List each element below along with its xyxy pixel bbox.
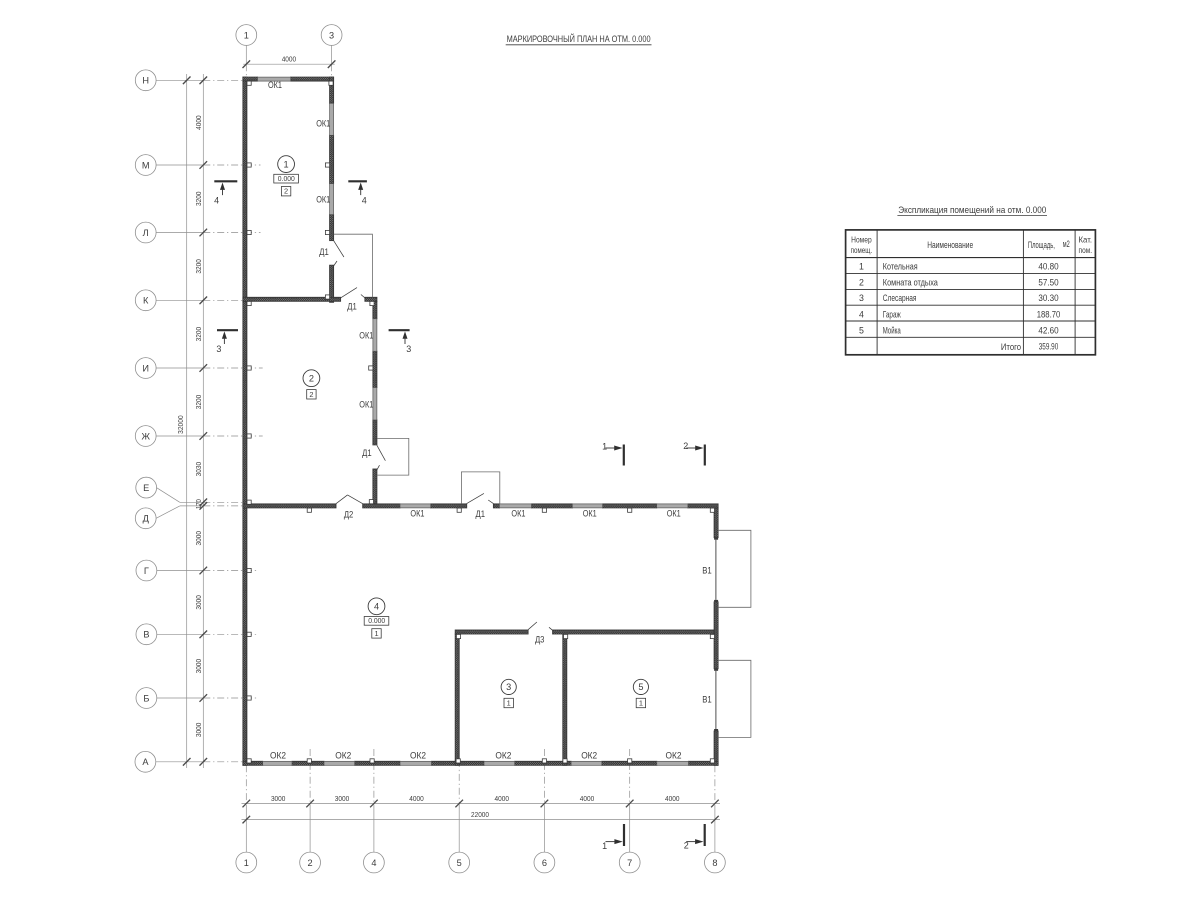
svg-text:4000: 4000 — [580, 796, 595, 803]
svg-text:Комната отдыха: Комната отдыха — [883, 277, 938, 287]
svg-text:3200: 3200 — [196, 327, 203, 342]
svg-text:ОК2: ОК2 — [410, 750, 426, 760]
svg-text:Л: Л — [143, 228, 149, 238]
svg-text:ОК2: ОК2 — [666, 750, 682, 760]
svg-text:помещ.: помещ. — [851, 245, 873, 255]
svg-text:Д1: Д1 — [347, 302, 357, 312]
svg-text:Д1: Д1 — [362, 448, 372, 458]
svg-text:1: 1 — [284, 159, 289, 169]
svg-text:ОК1: ОК1 — [268, 80, 282, 90]
svg-text:Кат.: Кат. — [1079, 234, 1093, 244]
svg-text:4: 4 — [214, 196, 219, 206]
svg-text:В1: В1 — [702, 565, 712, 575]
svg-text:пом.: пом. — [1079, 245, 1093, 255]
svg-text:1: 1 — [374, 629, 378, 638]
svg-text:1: 1 — [602, 841, 607, 851]
svg-text:5: 5 — [859, 326, 864, 336]
svg-text:ОК1: ОК1 — [583, 509, 597, 519]
svg-text:188.70: 188.70 — [1037, 309, 1061, 319]
svg-text:1: 1 — [244, 30, 249, 40]
svg-text:170: 170 — [196, 499, 203, 509]
svg-text:4000: 4000 — [196, 115, 203, 130]
svg-text:5: 5 — [457, 858, 462, 868]
svg-text:2: 2 — [309, 374, 314, 384]
svg-text:Слесарная: Слесарная — [883, 293, 917, 303]
svg-text:3: 3 — [329, 30, 334, 40]
svg-text:Д3: Д3 — [535, 634, 545, 644]
svg-text:Наименование: Наименование — [927, 240, 973, 250]
svg-text:М: М — [142, 160, 150, 170]
svg-text:3200: 3200 — [196, 395, 203, 410]
svg-text:Мойка: Мойка — [883, 326, 901, 336]
svg-text:ОК2: ОК2 — [270, 750, 286, 760]
svg-text:Экспликация помещений на отм.: Экспликация помещений на отм. 0.000 — [898, 205, 1046, 215]
svg-text:ОК1: ОК1 — [410, 509, 424, 519]
svg-text:32000: 32000 — [178, 415, 185, 434]
svg-text:ОК1: ОК1 — [359, 331, 373, 341]
svg-text:Номер: Номер — [851, 234, 872, 244]
svg-text:ОК1: ОК1 — [359, 399, 373, 409]
svg-text:40.80: 40.80 — [1038, 261, 1058, 271]
svg-text:2: 2 — [683, 441, 688, 451]
svg-text:Н: Н — [142, 76, 149, 86]
svg-text:4: 4 — [859, 309, 864, 319]
svg-text:1: 1 — [507, 699, 511, 708]
svg-text:30.30: 30.30 — [1038, 293, 1058, 303]
svg-text:ОК2: ОК2 — [581, 750, 597, 760]
svg-text:Ж: Ж — [141, 431, 150, 441]
svg-text:ОК1: ОК1 — [316, 195, 330, 205]
svg-text:3: 3 — [406, 344, 411, 354]
svg-text:3: 3 — [859, 293, 864, 303]
svg-text:8: 8 — [712, 858, 717, 868]
svg-text:42.60: 42.60 — [1038, 326, 1058, 336]
svg-text:ОК2: ОК2 — [495, 750, 511, 760]
svg-text:0.000: 0.000 — [368, 618, 385, 625]
svg-text:3200: 3200 — [196, 191, 203, 206]
svg-text:ОК1: ОК1 — [667, 509, 681, 519]
svg-text:Гараж: Гараж — [883, 309, 901, 319]
svg-text:1: 1 — [602, 441, 607, 451]
svg-text:А: А — [142, 757, 149, 767]
svg-text:В: В — [143, 630, 149, 640]
svg-text:0.000: 0.000 — [278, 176, 295, 183]
svg-text:3000: 3000 — [196, 659, 203, 674]
svg-text:МАРКИРОВОЧНЫЙ ПЛАН НА ОТМ. 0.0: МАРКИРОВОЧНЫЙ ПЛАН НА ОТМ. 0.000 — [507, 33, 651, 44]
svg-text:Д1: Д1 — [319, 247, 329, 257]
svg-text:3000: 3000 — [196, 723, 203, 738]
svg-text:3000: 3000 — [196, 595, 203, 610]
svg-text:4: 4 — [374, 602, 379, 612]
svg-text:В1: В1 — [702, 695, 712, 705]
svg-text:Б: Б — [143, 693, 149, 703]
svg-text:3030: 3030 — [196, 462, 203, 477]
svg-text:4000: 4000 — [409, 796, 424, 803]
svg-text:Д1: Д1 — [476, 509, 486, 519]
svg-text:3000: 3000 — [335, 796, 350, 803]
svg-text:2: 2 — [308, 858, 313, 868]
svg-text:И: И — [142, 363, 149, 373]
svg-text:ОК1: ОК1 — [316, 119, 330, 129]
svg-text:2: 2 — [684, 841, 689, 851]
svg-text:4000: 4000 — [495, 796, 510, 803]
svg-text:3: 3 — [506, 682, 511, 692]
svg-text:2: 2 — [309, 390, 313, 399]
svg-text:5: 5 — [638, 682, 643, 692]
svg-text:4: 4 — [371, 858, 376, 868]
svg-text:3200: 3200 — [196, 259, 203, 274]
svg-text:Котельная: Котельная — [883, 261, 918, 271]
svg-text:К: К — [143, 296, 149, 306]
svg-text:4000: 4000 — [282, 56, 297, 63]
svg-text:Е: Е — [143, 483, 149, 493]
svg-text:7: 7 — [627, 858, 632, 868]
svg-text:1: 1 — [244, 858, 249, 868]
svg-text:1: 1 — [639, 699, 643, 708]
svg-text:6: 6 — [542, 858, 547, 868]
svg-text:3: 3 — [216, 344, 221, 354]
svg-text:Д: Д — [143, 514, 150, 524]
svg-text:Д2: Д2 — [344, 509, 354, 519]
svg-text:Итого: Итого — [1001, 342, 1021, 352]
svg-text:22000: 22000 — [471, 812, 489, 819]
svg-text:2: 2 — [859, 277, 864, 287]
svg-text:ОК2: ОК2 — [335, 750, 351, 760]
svg-text:ОК1: ОК1 — [511, 509, 525, 519]
svg-text:4000: 4000 — [665, 796, 680, 803]
svg-text:1: 1 — [859, 261, 864, 271]
svg-text:2: 2 — [284, 187, 288, 196]
svg-text:3000: 3000 — [271, 796, 286, 803]
svg-text:4: 4 — [362, 196, 367, 206]
svg-text:Г: Г — [144, 566, 149, 576]
svg-text:359.90: 359.90 — [1039, 342, 1059, 352]
svg-text:Площадь,: Площадь, — [1028, 240, 1055, 250]
svg-text:м2: м2 — [1063, 239, 1070, 249]
svg-text:3000: 3000 — [196, 531, 203, 546]
svg-text:57.50: 57.50 — [1038, 277, 1058, 287]
